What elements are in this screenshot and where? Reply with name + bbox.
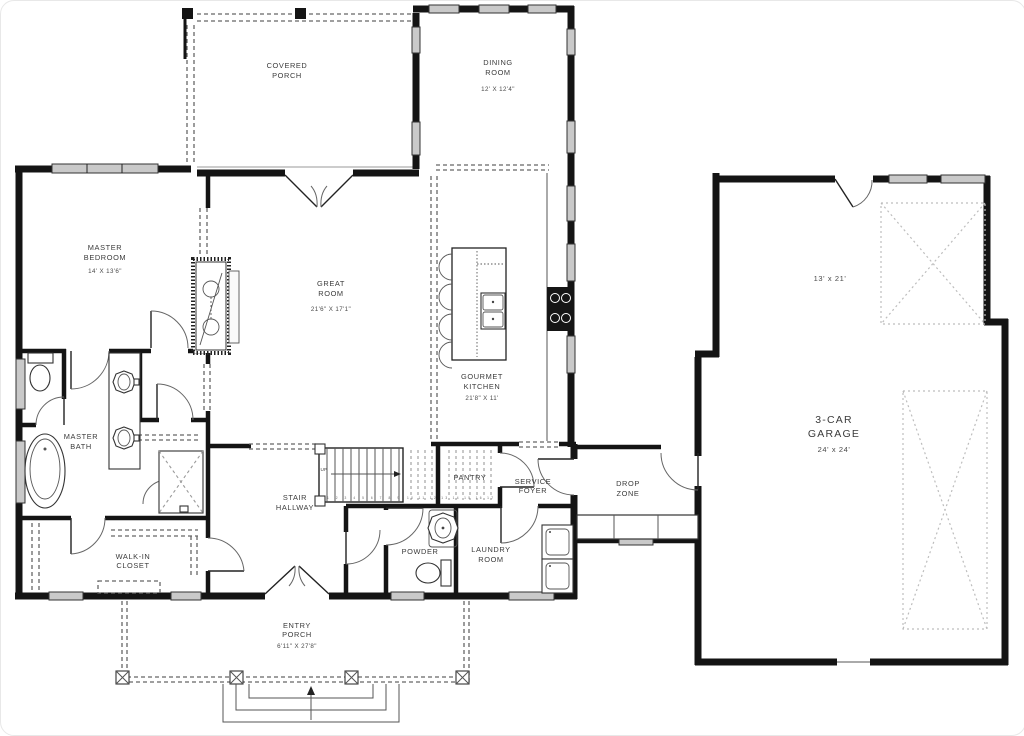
master-bedroom-door [151,311,188,348]
svg-text:12' X 12'4": 12' X 12'4" [481,86,515,93]
label-dining-room: DINING ROOM 12' X 12'4" [481,58,515,93]
svg-text:HALLWAY: HALLWAY [276,503,314,512]
porch-post [295,8,306,19]
svg-text:ROOM: ROOM [485,68,510,77]
entry-french-doors [265,566,329,594]
svg-text:DROP: DROP [616,479,640,488]
label-great-room: GREAT ROOM 21'6" X 17'1" [311,279,351,313]
entry-steps [223,684,399,722]
svg-text:GARAGE: GARAGE [808,428,860,440]
bath-fixtures [25,353,203,513]
label-service-foyer: SERVICE FOYER [515,477,552,495]
svg-text:21'6" X 17'1": 21'6" X 17'1" [311,306,351,313]
svg-text:MASTER: MASTER [64,432,98,441]
bath-vestibule-door [157,384,193,420]
svg-text:PORCH: PORCH [282,630,312,639]
label-walk-in-closet: WALK-IN CLOSET [116,552,151,570]
svg-text:DINING: DINING [483,58,512,67]
label-stair-hallway: STAIR HALLWAY [276,493,314,512]
svg-text:LAUNDRY: LAUNDRY [471,545,510,554]
svg-text:STAIR: STAIR [283,493,307,502]
closet-island [98,581,160,593]
hearth [229,271,239,343]
svg-text:KITCHEN: KITCHEN [464,382,501,391]
svg-text:BATH: BATH [70,442,92,451]
vanity [109,353,140,469]
label-master-bath: MASTER BATH [64,432,98,451]
svg-text:ZONE: ZONE [617,489,640,498]
newel-post [315,496,325,506]
label-garage: 3-CAR GARAGE 24' x 24' 13' x 21' [808,274,860,454]
svg-text:3-CAR: 3-CAR [815,414,853,426]
svg-text:GOURMET: GOURMET [461,372,503,381]
svg-text:COVERED: COVERED [267,61,308,70]
svg-text:14' X 13'6": 14' X 13'6" [88,268,122,275]
label-garage-bay-dim: 13' x 21' [814,274,847,283]
laundry-door [501,506,538,543]
kitchen-fixtures [439,173,573,441]
closet-door [71,518,105,554]
label-gourmet-kitchen: GOURMET KITCHEN 21'8" X 11' [461,372,503,402]
svg-text:CLOSET: CLOSET [116,561,149,570]
toilet-room-door [36,397,64,425]
svg-text:WALK-IN: WALK-IN [116,552,151,561]
covered-porch-outline [182,8,415,167]
svg-text:FOYER: FOYER [519,486,547,495]
island-stools [439,254,452,368]
powder-toilet [416,560,451,586]
svg-text:GREAT: GREAT [317,279,345,288]
porch-post [182,8,193,19]
label-powder: POWDER [402,547,439,556]
coat-closet-door [346,530,380,564]
master-bath-door [71,351,109,389]
newel-post [315,444,325,454]
kitchen-island [452,248,506,360]
exterior-walls [15,6,701,599]
floor-plan: UP 1 2 3 4 5 6 7 8 9 10 11 12 13 14 15 1… [1,1,1024,735]
porch-french-doors [285,175,353,207]
washer [542,525,573,559]
range [547,287,573,331]
entry-porch-outline [116,601,469,722]
shower [159,451,203,513]
svg-text:MASTER: MASTER [88,243,122,252]
svg-text:6'11" X 27'8": 6'11" X 27'8" [277,643,317,650]
svg-text:BEDROOM: BEDROOM [84,253,126,262]
laundry-fixtures [542,525,573,593]
stair-tread-numbers-2: 10 11 12 13 14 15 16 17 [407,496,493,500]
island-sink [481,293,505,329]
label-master-bedroom: MASTER BEDROOM 14' X 13'6" [84,243,126,275]
drop-zone-door [661,453,698,490]
entry-direction-arrow [307,686,315,695]
label-pantry: PANTRY [454,473,487,482]
label-covered-porch: COVERED PORCH [267,61,308,80]
svg-text:24' x 24': 24' x 24' [818,445,851,454]
label-laundry-room: LAUNDRY ROOM [471,545,510,564]
bathtub [25,434,65,508]
floor-plan-canvas: UP 1 2 3 4 5 6 7 8 9 10 11 12 13 14 15 1… [0,0,1024,736]
svg-text:PORCH: PORCH [272,71,302,80]
label-entry-porch: ENTRY PORCH 6'11" X 27'8" [277,621,317,650]
svg-text:ENTRY: ENTRY [283,621,311,630]
fireplace [193,259,239,353]
toilet [28,353,53,391]
garage-side-door [835,179,872,207]
closet-foyer-door [208,538,244,571]
svg-text:SERVICE: SERVICE [515,477,552,486]
powder-door [386,508,423,545]
dryer [542,559,573,593]
svg-text:ROOM: ROOM [478,555,503,564]
svg-text:21'8" X 11': 21'8" X 11' [465,395,498,402]
svg-text:ROOM: ROOM [318,289,343,298]
drop-zone-cubbies [577,515,698,539]
label-drop-zone: DROP ZONE [616,479,640,498]
stairs-up-label: UP [321,467,328,472]
garage-car-spaces [881,203,987,629]
